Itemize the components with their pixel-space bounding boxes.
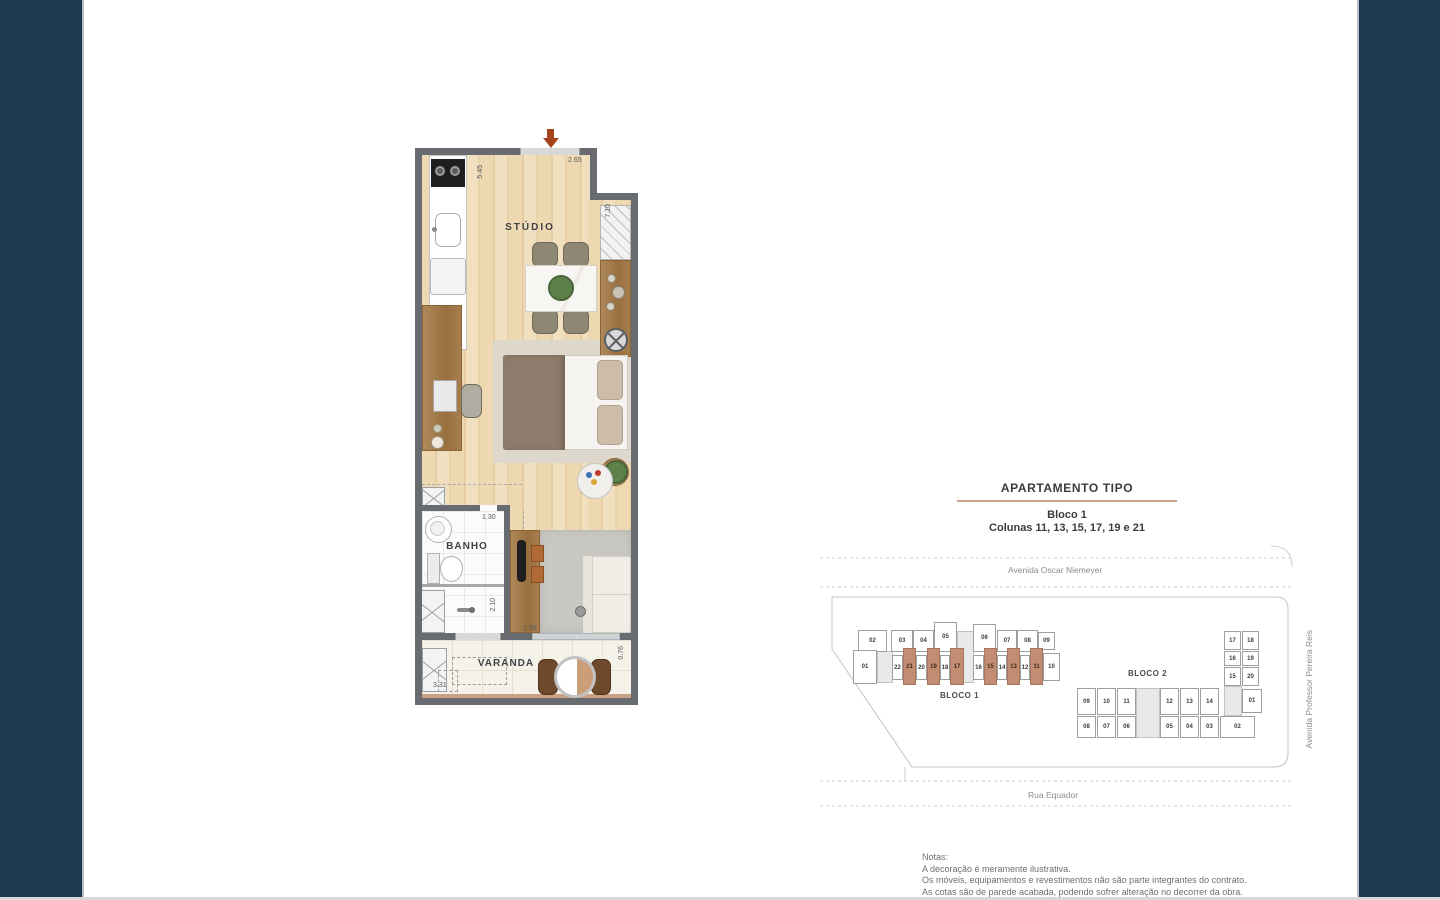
wall-bathroom-right	[504, 505, 510, 640]
pillow	[597, 405, 623, 445]
unit-cell-b1-16: 16	[973, 655, 984, 680]
unit-cell-b2-17: 17	[1224, 631, 1241, 650]
banho-label: BANHO	[435, 541, 499, 552]
unit-cell-b2-04: 04	[1180, 716, 1199, 738]
note-line: A decoração é meramente ilustrativa.	[922, 864, 1247, 876]
page: STÚDIO BANHO VARANDA 2.65 5.45 7.10 1.30…	[0, 0, 1440, 900]
console-box	[531, 545, 544, 562]
dining-chair	[563, 309, 589, 334]
bath-sink-bowl	[430, 521, 445, 536]
table-plant	[548, 275, 574, 301]
unit-cell-b2-01: 01	[1242, 689, 1262, 713]
unit-cell-b1-21: 21	[903, 648, 916, 685]
bowl	[612, 286, 625, 299]
unit-cell-b2-20: 20	[1242, 667, 1259, 686]
desk-item	[431, 436, 444, 449]
wall-bottom	[415, 698, 638, 705]
varanda-sliding-door	[455, 633, 501, 640]
unit-cell-b1-14: 14	[997, 655, 1007, 680]
note-line: Os móveis, equipamentos e revestimentos …	[922, 875, 1247, 887]
toilet-tank	[427, 553, 440, 584]
bowl	[607, 274, 616, 283]
varanda-window	[532, 633, 620, 640]
bowl	[606, 302, 615, 311]
wall-left	[415, 148, 422, 705]
left-frame-band	[0, 0, 84, 900]
site-map: Avenida Oscar Niemeyer Rua Equador Aveni…	[820, 545, 1320, 815]
dim-left: 5.45	[477, 165, 484, 179]
decor-dot	[591, 479, 597, 485]
varanda-label: VARANDA	[461, 658, 551, 669]
unit-cell-b1-15: 15	[984, 648, 997, 685]
notes-block: Notas: A decoração é meramente ilustrati…	[922, 852, 1247, 898]
dim-top: 2.65	[568, 157, 582, 164]
unit-cell-b1-01: 01	[853, 650, 877, 684]
bloco2-label: BLOCO 2	[1128, 669, 1167, 678]
desk-printer	[433, 380, 457, 412]
dining-chair	[532, 242, 558, 267]
decor-dot	[595, 470, 601, 476]
bed-blanket	[503, 355, 565, 450]
burner	[435, 166, 445, 176]
unit-cell-b2-09: 09	[1077, 688, 1096, 715]
dim-shower: 2.10	[490, 598, 497, 612]
unit-cell-b2-10: 10	[1097, 688, 1116, 715]
bloco1-label: BLOCO 1	[940, 691, 979, 700]
dashed-line	[422, 484, 522, 485]
unit-cell-b1-20: 20	[916, 655, 927, 680]
varanda-table	[554, 656, 596, 698]
kitchen-sink	[435, 213, 461, 247]
unit-cell-b2-19: 19	[1242, 651, 1259, 666]
unit-cell-b2-13: 13	[1180, 688, 1199, 715]
dim-banho: 1.30	[482, 514, 496, 521]
entry-arrow-icon	[547, 129, 554, 138]
fan-stool	[604, 328, 628, 352]
floorplan: STÚDIO BANHO VARANDA 2.65 5.45 7.10 1.30…	[405, 128, 650, 713]
unit-cell-b2-06: 06	[1117, 716, 1136, 738]
page-title: APARTAMENTO TIPO	[957, 481, 1177, 495]
unit-cell-b1-18: 18	[940, 655, 950, 680]
entry-arrow-icon	[543, 138, 559, 148]
unit-cell-b1-02: 02	[858, 630, 887, 652]
unit-cell-b2-02: 02	[1220, 716, 1255, 738]
unit-cell-b2-11: 11	[1117, 688, 1136, 715]
dim-corridor: 1.95	[523, 625, 537, 632]
notes-title: Notas:	[922, 852, 1247, 864]
unit-cell-b1-13: 13	[1007, 648, 1020, 685]
burner	[450, 166, 460, 176]
unit-cell-b2-05: 05	[1160, 716, 1179, 738]
block-subtitle: Bloco 1	[957, 509, 1177, 521]
fridge	[430, 258, 466, 295]
unit-cell-b2-14: 14	[1200, 688, 1219, 715]
title-block: APARTAMENTO TIPO Bloco 1 Colunas 11, 13,…	[957, 481, 1177, 534]
building-connector	[1224, 686, 1242, 716]
desk-item	[433, 424, 442, 433]
unit-cell-b1-11: 11	[1030, 648, 1043, 685]
building-connector	[877, 651, 893, 683]
floor-lamp	[575, 606, 586, 617]
building-connector	[1136, 688, 1160, 738]
desk-chair	[461, 384, 482, 418]
unit-cell-b1-12: 12	[1020, 655, 1030, 680]
unit-cell-b2-15: 15	[1224, 667, 1241, 686]
bathroom-door-gap	[480, 505, 497, 511]
studio-label: STÚDIO	[490, 222, 570, 233]
title-underline	[957, 500, 1177, 502]
unit-cell-b1-22: 22	[892, 655, 903, 680]
unit-cell-b1-19: 19	[927, 648, 940, 685]
shaft-box	[420, 590, 445, 633]
dim-right: 7.10	[605, 204, 612, 218]
unit-cell-b2-08: 08	[1077, 716, 1096, 738]
dim-varanda-width: 3.31	[433, 682, 447, 689]
right-frame-band	[1357, 0, 1440, 900]
units-layer: 0203040506070809012221201918171615141312…	[820, 545, 1320, 815]
unit-cell-b2-18: 18	[1242, 631, 1259, 650]
shower-valve	[469, 607, 475, 613]
unit-cell-b2-03: 03	[1200, 716, 1219, 738]
tv	[517, 540, 526, 582]
unit-cell-b1-17: 17	[950, 648, 964, 685]
unit-cell-b2-07: 07	[1097, 716, 1116, 738]
wall-right	[631, 193, 638, 705]
faucet	[432, 227, 437, 232]
dim-varanda-depth: 0.76	[618, 646, 625, 660]
dining-chair	[532, 309, 558, 334]
dining-chair	[563, 242, 589, 267]
columns-subtitle: Colunas 11, 13, 15, 17, 19 e 21	[957, 522, 1177, 534]
entry-door	[520, 148, 580, 155]
decor-dot	[586, 472, 592, 478]
unit-cell-b1-10: 10	[1043, 653, 1060, 681]
unit-cell-b2-16: 16	[1224, 651, 1241, 666]
pillow	[597, 360, 623, 400]
sofa-arm	[583, 556, 593, 633]
unit-cell-b2-12: 12	[1160, 688, 1179, 715]
wall-shower-divider	[422, 584, 504, 587]
console-box	[531, 566, 544, 583]
desk-counter	[422, 305, 462, 451]
